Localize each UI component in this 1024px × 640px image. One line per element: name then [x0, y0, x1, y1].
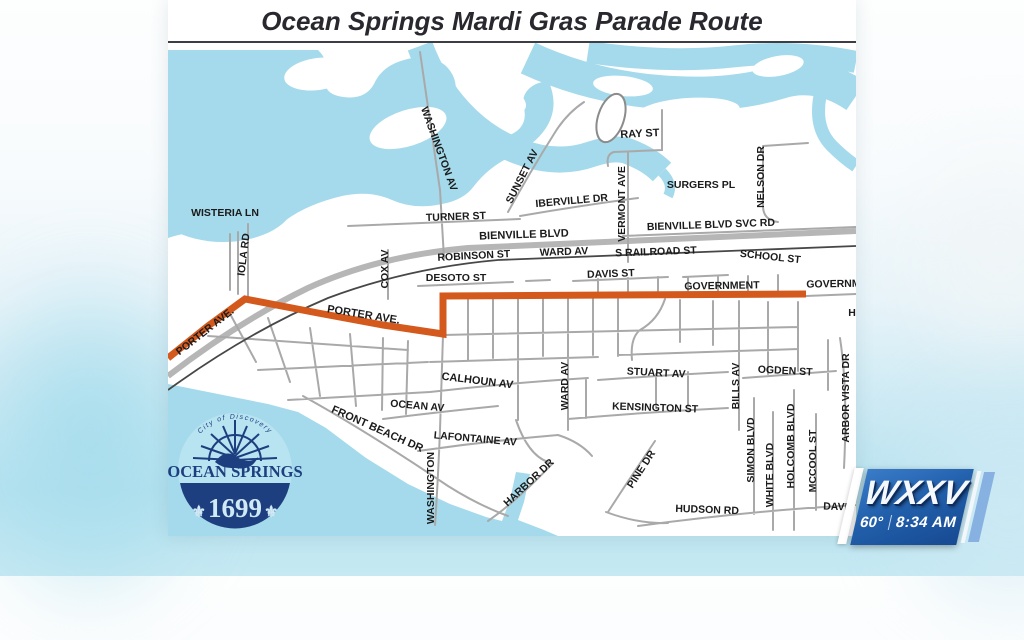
street-label: TURNER ST	[426, 210, 487, 224]
news-frame: { "title": "Ocean Springs Mardi Gras Par…	[0, 0, 1024, 576]
map-title: Ocean Springs Mardi Gras Parade Route	[168, 0, 856, 43]
street-label: PINE DR	[625, 448, 658, 491]
street-label: SCHOOL ST	[739, 248, 802, 266]
badge-divider	[887, 515, 891, 530]
seal-state-text: MISSISSIPPI	[198, 483, 273, 490]
street-label: WARD AV	[539, 245, 588, 259]
temperature-readout: 60°	[858, 514, 885, 531]
street-label: MCCOOL ST	[807, 429, 819, 492]
street-label: S RAILROAD ST	[615, 245, 698, 260]
station-bug: WXXV 60° 8:34 AM	[838, 465, 1018, 547]
street-label: HARBOR DR	[501, 456, 556, 509]
station-badge: WXXV 60° 8:34 AM	[850, 469, 974, 545]
street-label: BILLS AV	[730, 363, 742, 410]
background-blur-right-upper	[890, 120, 1024, 380]
street-label: GOVERNMENT	[684, 279, 760, 292]
parade-route-line	[168, 294, 806, 358]
street-label: SURGERS PL	[667, 179, 736, 191]
street-label: DAVIS ST	[587, 267, 636, 281]
station-call-letters: WXXV	[858, 474, 973, 513]
street-label: COX AV	[379, 249, 391, 288]
street-label: LAFONTAINE AV	[433, 429, 517, 448]
street-label: KENSINGTON ST	[612, 401, 699, 416]
street-label: DESOTO ST	[426, 272, 487, 284]
street-label: OCEAN AV	[390, 398, 445, 415]
street-label: H	[848, 307, 856, 319]
time-readout: 8:34 AM	[894, 514, 958, 531]
street-label: GOVERNMENT	[806, 277, 856, 290]
street-label: VERMONT AVE	[616, 166, 628, 242]
street-label: ARBOR VISTA DR	[840, 353, 852, 443]
map-graphic: WISTERIA LNTURNER STBIENVILLE BLVDIBERVI…	[168, 0, 856, 536]
street-label: RAY ST	[620, 127, 660, 141]
seal-city-text: OCEAN SPRINGS	[168, 462, 303, 481]
street-label: WASHINGTON	[425, 452, 437, 524]
street-label: WISTERIA LN	[191, 207, 259, 219]
street-label: SIMON BLVD	[745, 417, 757, 483]
street-label: HUDSON RD	[675, 503, 739, 517]
street-label: WARD AV	[559, 362, 571, 410]
parade-route-map: Ocean Springs Mardi Gras Parade Route	[168, 0, 856, 536]
street-label: CALHOUN AV	[441, 371, 515, 392]
street-label: WHITE BLVD	[764, 442, 776, 507]
street-label: BIENVILLE BLVD	[479, 227, 569, 242]
street-label: HOLCOMB BLVD	[785, 403, 797, 488]
street-label: ROBINSON ST	[437, 248, 511, 264]
street-label: NELSON DR	[755, 146, 767, 208]
